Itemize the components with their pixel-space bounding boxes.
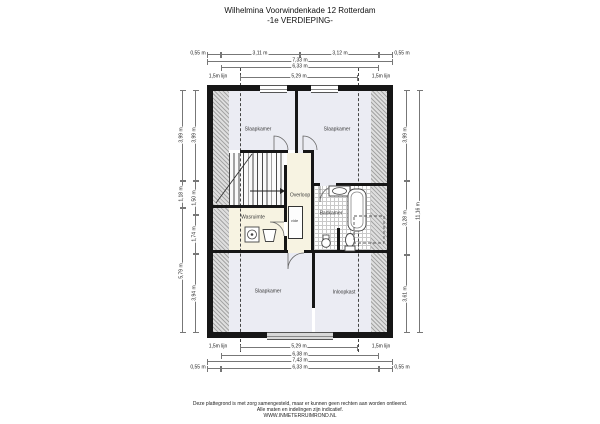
dim-seg <box>207 54 221 55</box>
room-label-wasruimte: Wasruimte <box>241 216 265 221</box>
room-label-overloop: Overloop <box>290 194 310 199</box>
room-label-shaft: vide <box>291 219 298 223</box>
washing-machine-dot-icon <box>251 233 254 236</box>
dim-seg <box>207 368 221 369</box>
room-label-slaapkamer-topright: Slaapkamer <box>324 128 351 133</box>
dim-label: 1,5m lijn <box>208 75 229 80</box>
door-arc-slaapkamer-bottom <box>288 253 304 269</box>
dim-label: 5,29 m <box>290 75 307 80</box>
dim-label: 3,94 m <box>193 284 198 301</box>
dim-label: 3,99 m <box>180 126 185 143</box>
dim-label: 3,99 m <box>193 126 198 143</box>
dim-label: 6,33 m <box>291 366 308 371</box>
floorplan-page: Wilhelmina Voorwindenkade 12 Rotterdam -… <box>0 0 600 424</box>
dim-seg <box>379 54 393 55</box>
dim-label: 1,74 m <box>193 225 198 242</box>
dim-label: 3,12 m <box>331 52 348 57</box>
dim-label: 0,55 m <box>393 366 410 371</box>
dim-label: 1,5m lijn <box>371 75 392 80</box>
dim-label: 3,11 m <box>252 52 269 57</box>
dim-seg <box>379 368 393 369</box>
dim-label: 5,79 m <box>180 262 185 279</box>
footer-website: WWW.INMETERRUIMROND.NL <box>0 413 600 419</box>
toilet-bowl-icon <box>346 234 355 247</box>
laundry-basket-icon <box>263 230 276 242</box>
dim-label: 1,5m lijn <box>371 345 392 350</box>
stair-arrow-head-icon <box>280 188 285 194</box>
door-arc-slaapkamer-topright <box>303 136 317 150</box>
room-label-slaapkamer-topleft: Slaapkamer <box>245 128 272 133</box>
room-label-inloopkast: Inloopkast <box>333 291 356 296</box>
room-label-badkamer: Badkamer <box>320 212 343 217</box>
room-label-slaapkamer-bottom: Slaapkamer <box>255 290 282 295</box>
dim-label: 11,16 m <box>417 201 422 221</box>
toilet2-bowl-icon <box>322 239 331 248</box>
dim-label: 1,5m lijn <box>208 345 229 350</box>
dim-label: 5,29 m <box>290 345 307 350</box>
dim-label: 3,99 m <box>404 126 409 143</box>
stair-cut-line <box>216 154 252 203</box>
dim-label: 3,61 m <box>404 285 409 302</box>
dim-label: 0,55 m <box>189 52 206 57</box>
dim-label: 1,18 m <box>180 185 185 202</box>
door-arc-slaapkamer-topleft <box>274 136 288 150</box>
dim-label: 1,50 m <box>193 189 198 206</box>
dim-label: 0,55 m <box>393 52 410 57</box>
dim-label: 6,33 m <box>291 65 308 70</box>
toilet-tank-icon <box>345 246 355 251</box>
dim-label: 3,28 m <box>404 209 409 226</box>
dim-label: 7,43 m <box>291 359 308 364</box>
dim-label: 0,55 m <box>189 366 206 371</box>
